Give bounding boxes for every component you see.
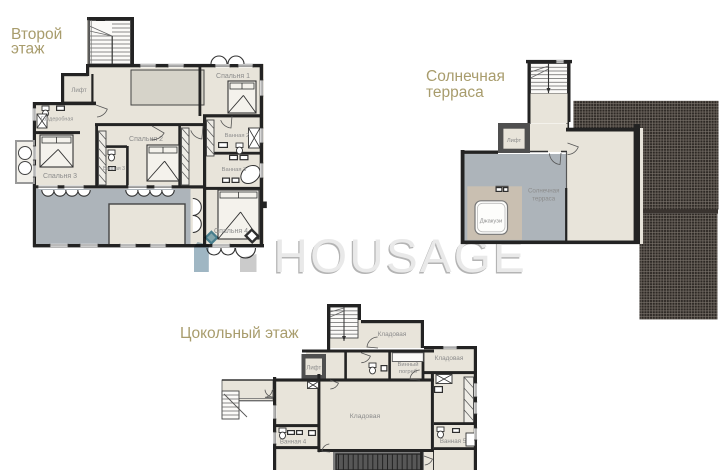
svg-text:Ванная 5: Ванная 5	[440, 438, 467, 445]
svg-text:погреб: погреб	[399, 369, 418, 375]
svg-text:Спальня 2: Спальня 2	[129, 136, 163, 143]
svg-text:Солнечная: Солнечная	[426, 68, 505, 85]
svg-text:Лифт: Лифт	[507, 138, 522, 144]
svg-text:Винный: Винный	[398, 361, 419, 368]
svg-text:Джакузи: Джакузи	[480, 219, 502, 225]
svg-text:Солнечная: Солнечная	[528, 187, 559, 194]
svg-text:Цокольный этаж: Цокольный этаж	[180, 325, 299, 342]
svg-text:Кладовая: Кладовая	[350, 413, 381, 420]
svg-text:терраса: терраса	[426, 84, 484, 101]
svg-text:Ванная 3: Ванная 3	[103, 166, 125, 172]
svg-text:Спальня 4: Спальня 4	[214, 228, 248, 235]
svg-text:Лифт: Лифт	[71, 87, 86, 94]
svg-text:Ванная 2: Ванная 2	[225, 133, 250, 139]
svg-text:терраса: терраса	[532, 195, 556, 202]
svg-text:этаж: этаж	[11, 41, 45, 58]
svg-text:Кладовая: Кладовая	[378, 331, 407, 338]
svg-text:Ванная 3: Ванная 3	[222, 167, 247, 173]
svg-text:Лифт: Лифт	[306, 366, 321, 372]
svg-text:Спальня 3: Спальня 3	[43, 173, 77, 180]
svg-text:Спальня 1: Спальня 1	[216, 73, 250, 80]
svg-text:Гардеробная: Гардеробная	[41, 117, 74, 123]
svg-text:Кладовая: Кладовая	[435, 355, 464, 362]
svg-text:Ванная 4: Ванная 4	[280, 439, 307, 446]
